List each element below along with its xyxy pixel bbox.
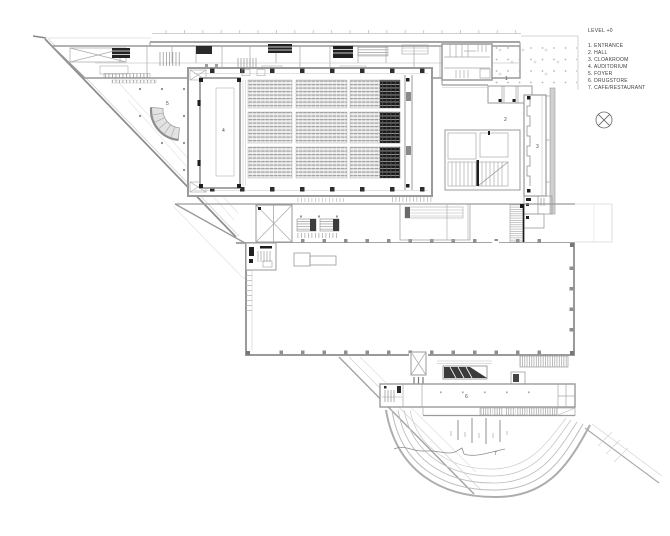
room-number-label: 6 bbox=[465, 394, 468, 400]
lower-hall bbox=[246, 243, 574, 357]
legend-item-entrance: 1. ENTRANCE bbox=[588, 43, 666, 50]
auditorium bbox=[188, 68, 432, 202]
room-number-label: 2 bbox=[504, 117, 507, 123]
room-number-label: 5 bbox=[166, 101, 169, 107]
cloakroom-corridor bbox=[524, 95, 546, 196]
room-number-label: 7 bbox=[494, 451, 497, 457]
band-east-room bbox=[400, 204, 470, 240]
band-hatched-stair bbox=[510, 204, 524, 242]
wing-escalator bbox=[443, 366, 487, 379]
room-number-label: 4 bbox=[222, 128, 225, 134]
legend-item-auditorium: 4. AUDITORIUM bbox=[588, 64, 666, 71]
foyer bbox=[139, 88, 185, 171]
terrace-planting-ticks bbox=[451, 418, 507, 444]
legend-item-drugstore: 6. DRUGSTORE bbox=[588, 78, 666, 85]
room-number-label: 3 bbox=[536, 144, 539, 150]
east-service-rooms bbox=[524, 196, 552, 228]
compass-icon bbox=[596, 112, 612, 128]
hall-corner-core bbox=[246, 243, 276, 270]
legend-title: LEVEL +0 bbox=[588, 28, 666, 34]
wing-ramp-hatch bbox=[511, 356, 568, 384]
terrace-freeform-edge bbox=[394, 447, 505, 455]
legend: LEVEL +0 1. ENTRANCE 2. HALL 3. CLOAKROO… bbox=[588, 28, 666, 92]
floor-plan-drawing: 1 2 3 4 5 6 7 bbox=[0, 0, 670, 536]
stage bbox=[198, 78, 242, 188]
escalator-shaft bbox=[256, 205, 292, 242]
legend-item-foyer: 5. FOYER bbox=[588, 71, 666, 78]
hall-to-wing-connectors bbox=[411, 352, 568, 387]
lower-wing bbox=[380, 384, 575, 416]
curved-stair bbox=[151, 107, 179, 139]
plan-sheet: 1 2 3 4 5 6 7 LEVEL +0 1. ENTRANCE 2. HA… bbox=[0, 0, 670, 536]
escalators bbox=[297, 216, 339, 239]
hall-stair-block bbox=[445, 130, 520, 190]
entrance-plaza bbox=[488, 38, 577, 103]
legend-item-hall: 2. HALL bbox=[588, 50, 666, 57]
room-number-label: 1 bbox=[505, 76, 508, 82]
legend-item-cafe-restaurant: 7. CAFE/RESTAURANT bbox=[588, 85, 666, 92]
seating-blocks bbox=[248, 80, 400, 178]
terrace-curved-road bbox=[386, 410, 590, 497]
legend-item-cloakroom: 3. CLOAKROOM bbox=[588, 57, 666, 64]
toilet-block bbox=[442, 44, 492, 80]
